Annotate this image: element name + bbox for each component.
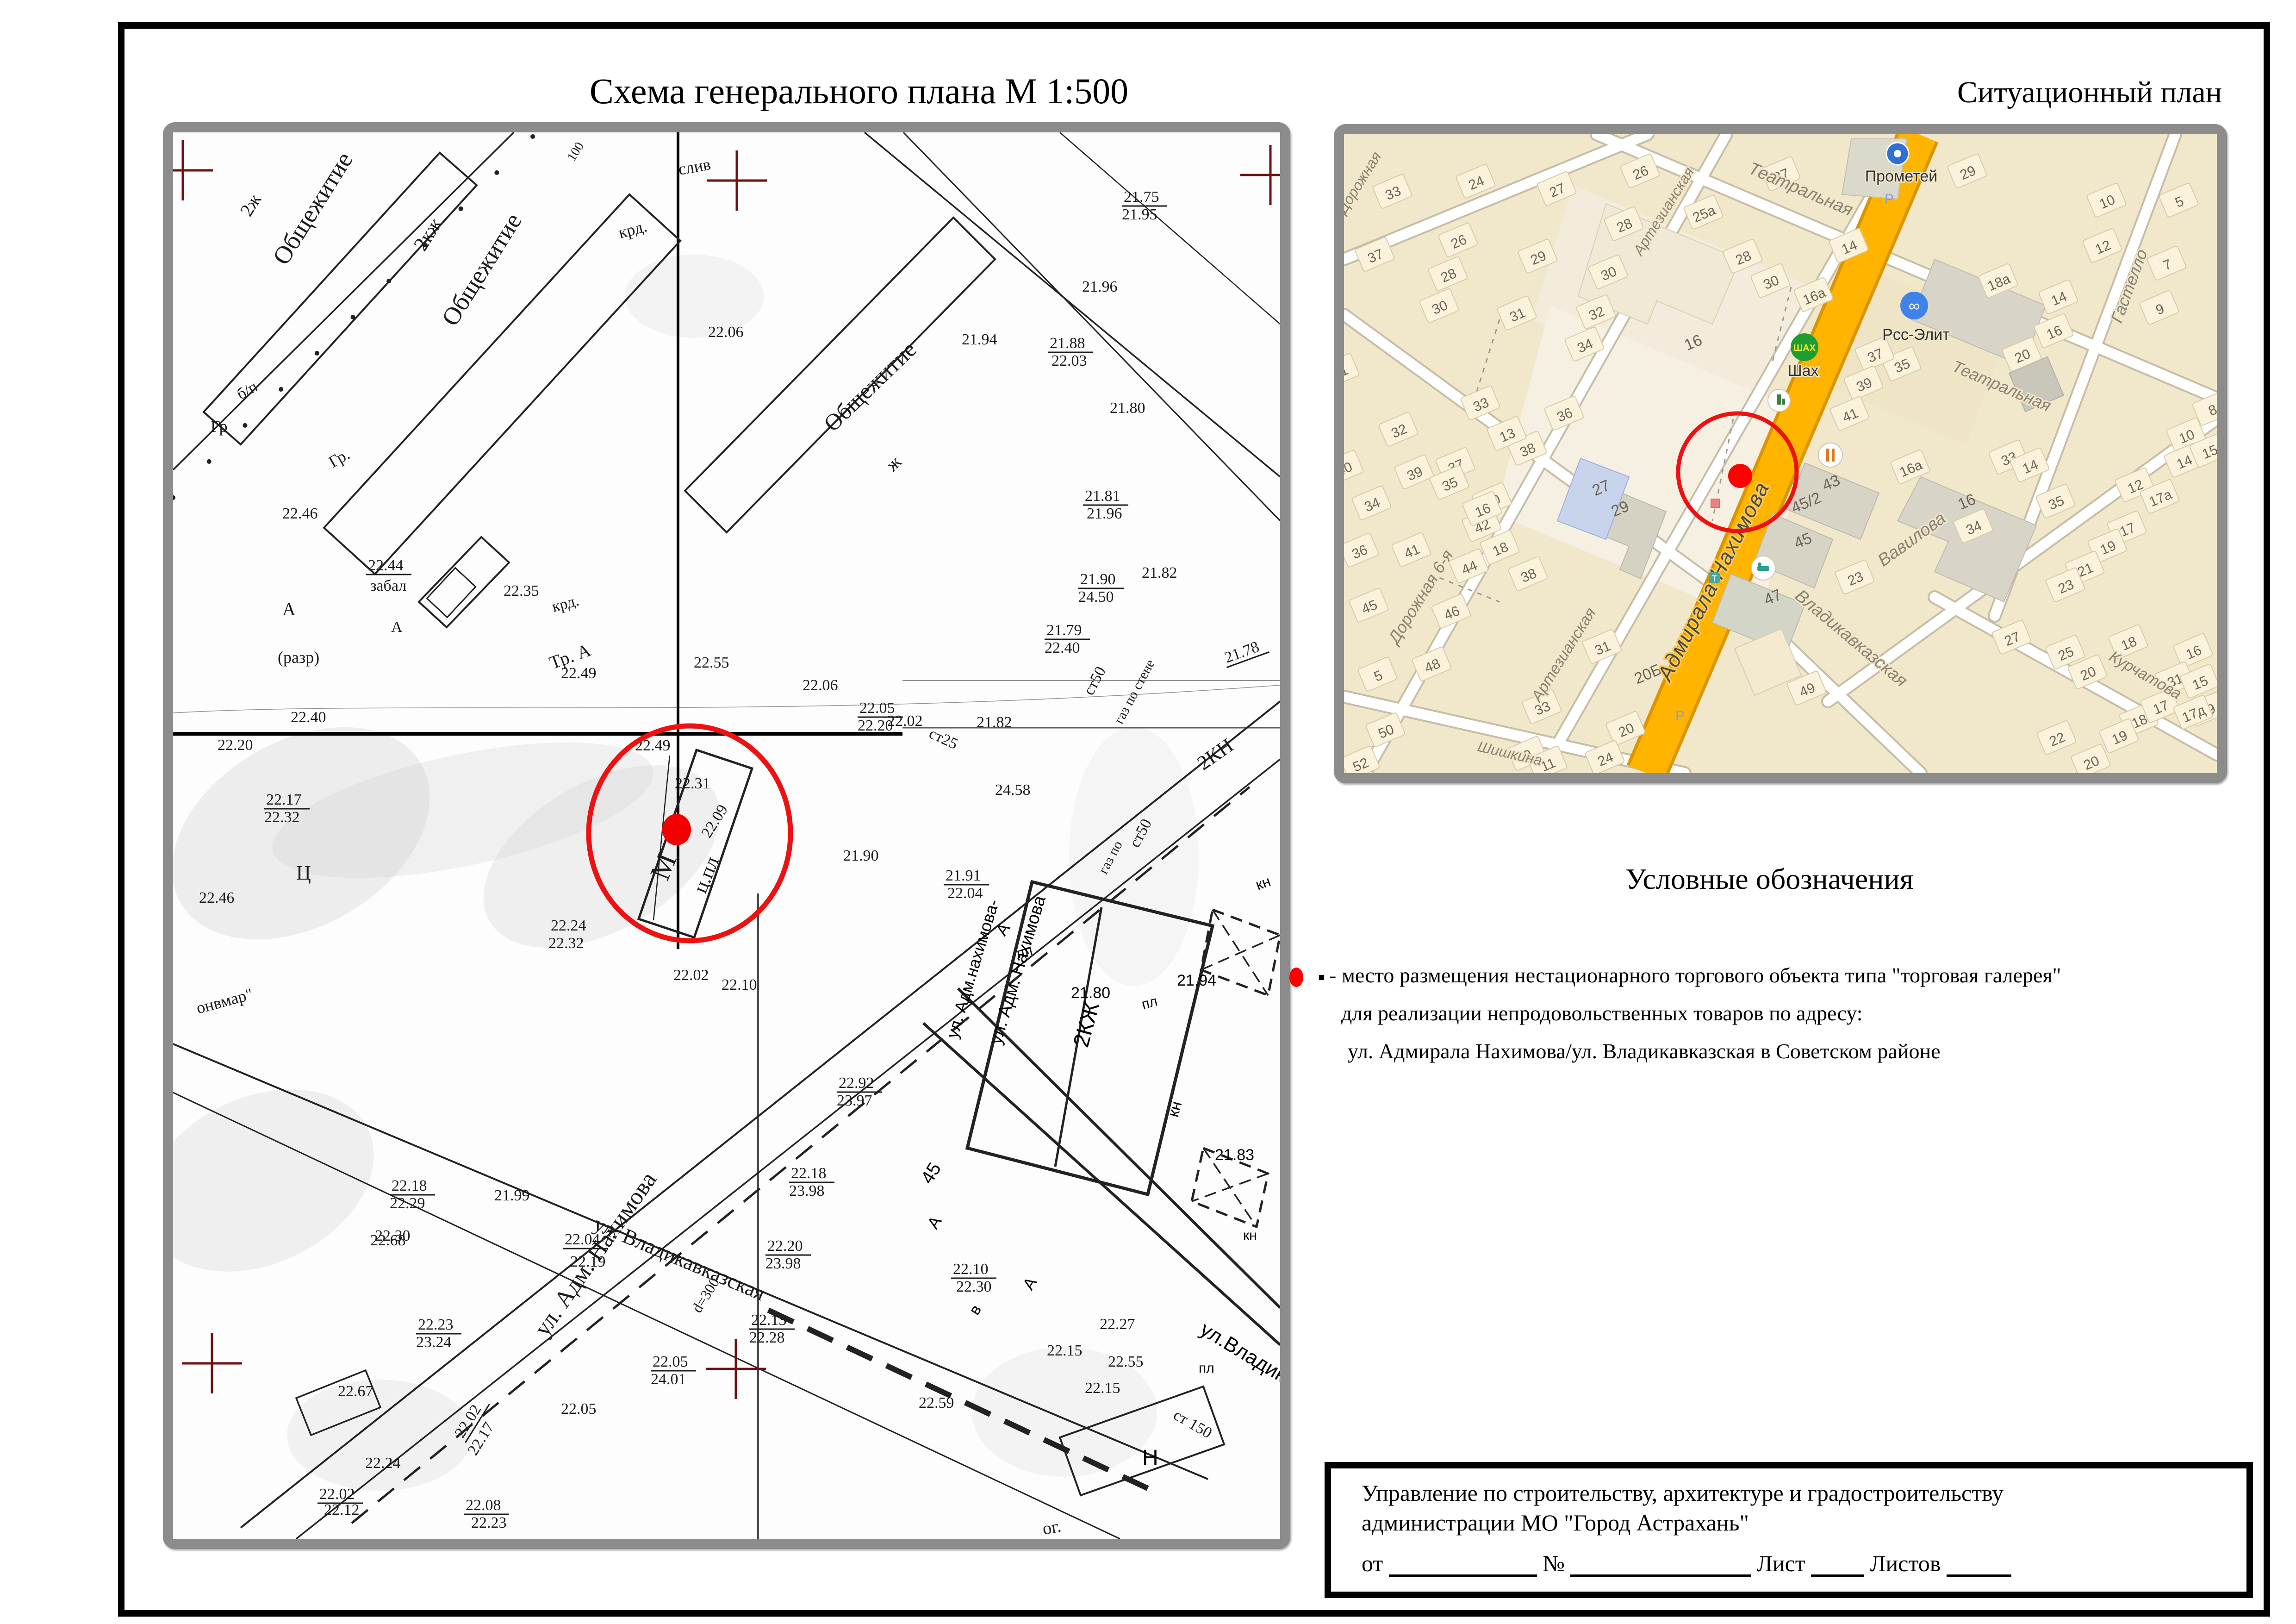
elevation-label: 22.02 [673,967,709,984]
poi-knife [1832,449,1835,462]
elevation-label: 22.59 [919,1394,954,1412]
elevation-label: 21.88 [1050,335,1085,352]
situational-map: 3324272627292825а37262830293028303132344… [1344,134,2217,773]
elevation-label: 24.50 [1078,588,1114,606]
poi-bar-bottle [1777,394,1781,405]
map-area-label: А [391,618,403,636]
legend-line-1: - место размещения нестационарного торго… [1329,963,2061,987]
elevation-label: 21.96 [1082,278,1118,295]
elevation-label: 22.06 [803,677,838,694]
elevation-label: 22.03 [1052,352,1087,369]
number-label: № [1543,1550,1565,1576]
elevation-label: 21.90 [843,847,879,864]
elevation-label: 22.30 [956,1278,992,1295]
map-area-label: онвмар" [194,985,255,1018]
map-area-label: Общежитие [436,208,527,331]
elevation-label: 22.13 [751,1312,787,1329]
general-plan-title: Схема генерального плана М 1:500 [512,70,1206,112]
general-plan-map-frame: Общежитие2жОбщежитие2кжОбщежитиежМц.пл2К… [163,122,1290,1549]
poi-bar-glass [1782,399,1785,405]
map-area-label: Общежитие [267,147,358,270]
registration-cross [707,150,767,211]
elevation-label: 21.94 [962,331,997,348]
poi-label: Прометей [1865,168,1938,185]
poi-label: Шах [1787,362,1818,380]
elevation-label: 21.79 [1046,622,1082,639]
legend-red-dot [1289,968,1303,987]
elevation-label: 22.55 [694,654,729,671]
elevation-label: 22.23 [418,1316,454,1333]
map-area-label: Ц [296,862,311,884]
map-area-label: 2ж [236,190,265,220]
elevation-label: 21.82 [1142,564,1177,581]
from-label: от [1362,1550,1383,1576]
elevation-label: 22.92 [839,1074,874,1092]
elevation-label: 21.94 [1177,972,1216,989]
poi-label: Рсс-Элит [1882,326,1950,344]
map-area-label: Общежитие [819,336,921,437]
poi-blue-glyph: ∞ [1909,297,1920,315]
map-area-label: кн [1253,873,1273,893]
map-area-label: пл [1140,993,1159,1012]
elevation-label: 23.98 [765,1255,801,1272]
elevation-label: 21.81 [1085,487,1120,505]
map-area-label: ст25 [927,725,961,753]
elevation-label: 22.18 [392,1177,427,1194]
poi-bed [1757,566,1769,571]
poi-green-glyph: ШАХ [1793,343,1816,353]
situational-map-frame: 3324272627292825а37262830293028303132344… [1334,124,2227,783]
elevation-label: 24.01 [651,1371,686,1388]
elevation-label: 21.83 [1215,1146,1254,1164]
map-area-label: пл [1199,1361,1214,1376]
situational-plan-title: Ситуационный план [1914,75,2265,110]
map-area-label: в [966,1302,985,1318]
title-block-line-1: Управление по строительству, архитектуре… [1362,1480,2004,1506]
elevation-label: 22.46 [282,505,318,522]
elevation-label: 22.15 [1047,1342,1083,1359]
map-area-label: А [1019,1274,1040,1293]
elevation-label: 22.19 [570,1253,606,1270]
placement-red-dot [1728,464,1752,488]
number-blank[interactable] [1570,1550,1751,1577]
map-area-label: крд. [616,217,649,242]
map-area-label: крд. [550,592,580,616]
map-area-label: ст 150 [1170,1406,1215,1442]
map-area-label: А [282,599,296,619]
map-area-label: 45 [917,1159,945,1187]
sheet-label: Лист [1757,1550,1805,1576]
map-area-label: Н [1142,1446,1158,1470]
elevation-label: 23.24 [416,1334,452,1351]
legend-line-2: для реализации непродовольственных товар… [1341,1001,1863,1025]
elevation-label: 24.58 [995,781,1031,799]
elevation-label: 21.80 [1110,400,1145,417]
map-area-label: газ по стене [1111,657,1158,726]
registration-cross [1240,145,1280,205]
map-area-label: кн [1243,1228,1257,1243]
map-area-label: ог. [1041,1517,1063,1539]
map-area-label: слив [677,155,712,179]
elevation-label: 22.12 [324,1501,360,1518]
map-area-label: (разр) [278,648,319,667]
elevation-label: 21.80 [1071,984,1110,1002]
map-area-label: б/п [234,378,261,403]
elevation-label: 21.96 [1087,505,1122,522]
elevation-label: 22.40 [1045,639,1080,656]
elevation-label: 21.99 [494,1187,530,1204]
elevation-label: 21.90 [1080,571,1116,588]
sheets-label: Листов [1870,1550,1941,1576]
legend-line-3: ул. Адмирала Нахимова/ул. Владикавказска… [1348,1039,1941,1063]
elevation-label: 22.05 [859,700,895,717]
elevation-label: 21.91 [946,867,981,884]
elevation-label: 22.23 [471,1514,507,1531]
elevation-label: 22.44 [368,557,404,574]
elevation-label: 22.20 [767,1237,803,1255]
poi-transit-glyph: Т [1712,574,1717,583]
elevation-label: 22.10 [953,1261,989,1278]
elevation-label: 23.98 [789,1182,825,1199]
elevation-label: 22.67 [338,1383,373,1400]
elevation-label: 22.10 [722,976,757,993]
poi-restaurant-icon [1818,443,1842,467]
elevation-label: 22.55 [1108,1353,1144,1370]
map-area-label: ул. Владикавказская [591,1212,769,1305]
elevation-label: 21.82 [977,714,1012,731]
sheets-blank[interactable] [1947,1550,2011,1577]
elevation-label: 22.18 [791,1165,827,1182]
scan-blotches [173,255,1199,1491]
elevation-label: 22.31 [675,775,710,792]
elevation-label: 22.24 [365,1455,401,1472]
parking-label: Р [1675,708,1685,724]
elevation-label: 22.04 [947,885,983,902]
elevation-label: 22.32 [548,935,584,952]
poi-pink-square [1711,499,1719,507]
elevation-label: 22.05 [561,1400,597,1418]
map-area-label: 2КЖ [1069,999,1104,1050]
elevation-label: 22.05 [653,1353,688,1370]
legend-title: Условные обозначения [1538,862,2001,896]
sheet-blank[interactable] [1811,1550,1864,1577]
elevation-label: 22.15 [1085,1380,1120,1397]
elevation-label: 22.46 [199,889,235,906]
elevation-label: 22.35 [504,582,539,600]
map-area-label: Гр. [325,445,353,471]
legend-bullet [1319,975,1324,980]
elevation-label: 22.20 [218,737,253,754]
elevation-label: 21.95 [1122,206,1157,223]
elevation-label: 22.08 [466,1497,501,1514]
elevation-label: 22.20 [858,717,893,734]
elevation-label: 22.17 [266,791,302,808]
elevation-label: 22.29 [390,1195,425,1212]
map-area-label: 2кж [409,213,447,255]
elevation-label: 22.49 [561,665,597,682]
elevation-label: 22.24 [551,917,586,934]
elevation-label: 23.97 [837,1092,872,1109]
elevation-label: 22.68 [370,1232,406,1249]
placement-red-dot [662,814,691,845]
elevation-label: 22.06 [708,324,744,341]
elevation-label: 22.27 [1100,1316,1135,1333]
elevation-label: 22.28 [749,1329,785,1346]
elevation-label: забал [370,577,406,594]
elevation-label: 22.32 [264,809,300,826]
poi-fork [1826,449,1829,462]
elevation-label: 22.40 [291,709,326,726]
title-block-line-3: от № Лист Листов [1362,1550,2011,1577]
registration-cross [173,140,213,200]
elevation-label: 22.04 [565,1231,600,1248]
registration-cross [182,1333,242,1393]
map-area-label: ж [881,451,905,476]
map-area-label: А [923,1212,945,1232]
title-block: Управление по строительству, архитектуре… [1325,1462,2253,1598]
title-block-line-2: администрации МО "Город Астрахань" [1362,1509,1749,1536]
elevation-label: 21.75 [1124,188,1159,206]
map-area-label: 100 [565,140,587,164]
elevation-label: 22.02 [319,1486,355,1503]
poi-pin-dot [1894,150,1901,157]
poi-bed-pillow [1758,562,1761,566]
map-area-label: Гр [211,417,228,436]
date-blank[interactable] [1389,1550,1537,1577]
general-plan-map: Общежитие2жОбщежитие2кжОбщежитиежМц.пл2К… [173,132,1280,1539]
parking-label: Р [1885,192,1894,207]
